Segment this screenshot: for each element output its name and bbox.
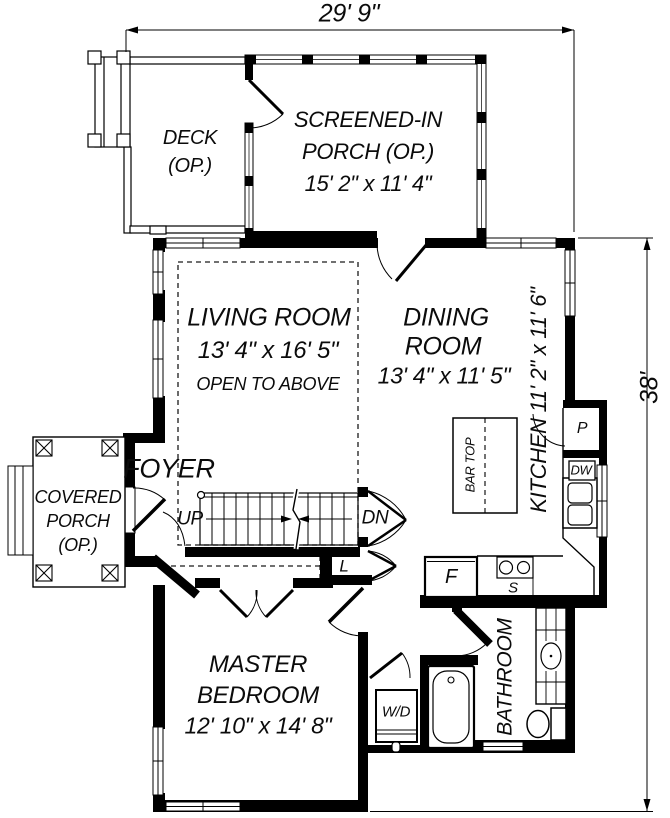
screened-porch-size: 15' 2" x 11' 4"	[305, 173, 432, 195]
covered-porch-optional: (OP.)	[58, 536, 97, 554]
bathroom-label: BATHROOM	[495, 618, 516, 735]
master-bedroom-size: 12' 10" x 14' 8"	[185, 715, 332, 738]
bathroom-bottom-window	[483, 742, 523, 751]
top-dimension-label: 29' 9"	[319, 2, 380, 27]
living-top-window	[166, 238, 240, 248]
floor-plan: 29' 9" 38' DECK (OP.) SCREENED-IN PORCH …	[0, 0, 670, 818]
living-left-window-lower	[153, 320, 163, 398]
kitchen-label: KITCHEN 11' 2" x 11' 6"	[528, 287, 550, 512]
master-bedroom-label-1: MASTER	[209, 653, 307, 677]
foyer-label: FOYER	[123, 456, 215, 483]
stairs-up-label: UP	[177, 510, 203, 529]
covered-porch-label-1: COVERED	[35, 488, 122, 506]
kitchen-right-window	[597, 465, 607, 537]
bathtub	[428, 666, 474, 748]
bedroom-bottom-window	[166, 802, 240, 811]
living-room-size: 13' 4" x 16' 5"	[198, 339, 338, 363]
open-to-above-label: OPEN TO ABOVE	[196, 375, 339, 393]
dining-room-label-1: DINING	[403, 306, 489, 331]
washer-dryer-unit	[376, 690, 417, 752]
dishwasher-label: DW	[570, 464, 591, 477]
master-bedroom-label-2: BEDROOM	[197, 684, 319, 708]
right-dimension-label: 38'	[638, 372, 663, 404]
vanity	[536, 608, 566, 704]
stair-newel	[198, 492, 205, 499]
range	[563, 478, 597, 528]
refrigerator-label: F	[445, 567, 457, 587]
dining-room-size: 13' 4" x 11' 5"	[378, 365, 511, 388]
covered-porch-label-2: PORCH	[46, 512, 110, 530]
living-room-label: LIVING ROOM	[187, 306, 350, 331]
sink	[497, 557, 533, 578]
deck-label: DECK	[163, 128, 217, 148]
sink-label: S	[508, 581, 518, 596]
stairs-down-label: DN	[362, 509, 389, 528]
pantry-label: P	[577, 421, 587, 437]
dining-right-window	[565, 250, 575, 316]
porch-steps	[8, 466, 33, 555]
dining-top-window	[486, 238, 556, 248]
linen-closet-label: L	[339, 558, 348, 575]
bar-top-label: BAR TOP	[464, 438, 477, 493]
dining-room-label-2: ROOM	[405, 335, 482, 360]
bedroom-left-window	[153, 727, 163, 795]
screened-porch-label-2: PORCH (OP.)	[302, 141, 434, 163]
screened-porch-label-1: SCREENED-IN	[294, 109, 442, 131]
deck-optional-label: (OP.)	[168, 156, 212, 176]
living-left-window-upper	[153, 250, 163, 294]
washer-dryer-label: W/D	[382, 705, 410, 720]
